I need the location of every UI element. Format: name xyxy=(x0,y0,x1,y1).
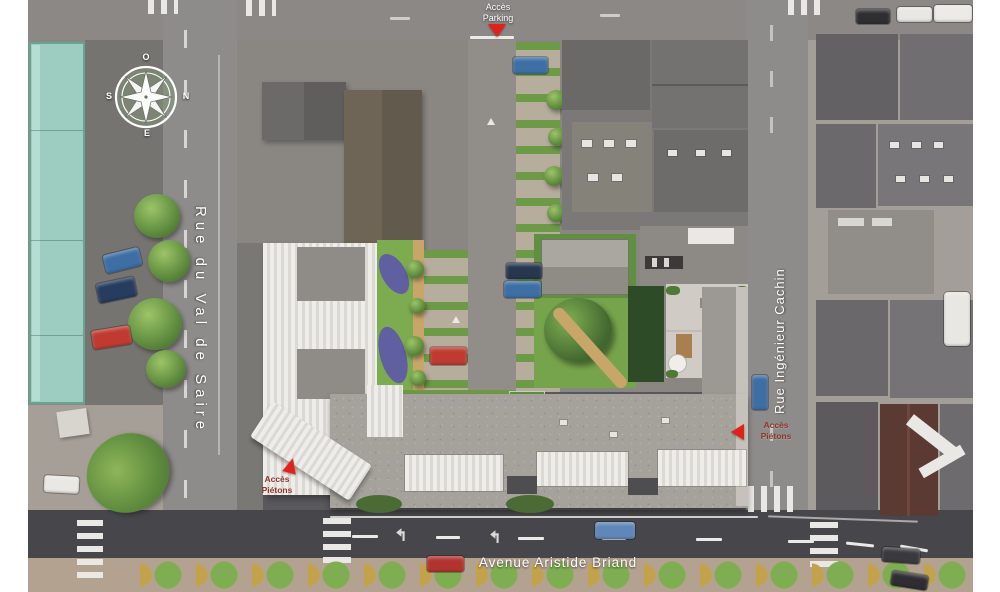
garden-tree xyxy=(404,336,424,356)
skylight xyxy=(934,142,943,148)
gable-roof-building xyxy=(542,240,628,294)
white-roof-mark xyxy=(872,218,892,226)
car xyxy=(897,7,932,22)
white-roof-strip-vertical xyxy=(367,385,403,437)
skylight xyxy=(588,174,598,181)
car-blue xyxy=(504,281,541,298)
skylight xyxy=(612,174,622,181)
east-block-roof xyxy=(816,34,898,120)
roof-ridge-line xyxy=(652,84,748,86)
acces-parking-label: Accès Parking xyxy=(470,2,526,24)
avenue-lane-dash xyxy=(696,538,722,541)
acces-pietons-right-line2: Piétons xyxy=(750,431,802,442)
car-lightblue xyxy=(595,522,635,539)
roof-gap xyxy=(628,478,658,495)
van xyxy=(934,5,972,22)
acces-parking-line2: Parking xyxy=(470,13,526,24)
teal-roof-seam xyxy=(31,335,83,336)
street-tree xyxy=(146,350,186,388)
parking-bays-west xyxy=(424,250,468,392)
skylight xyxy=(912,142,921,148)
dark-roof-detail-slit xyxy=(652,258,657,267)
car-white xyxy=(44,475,80,494)
parking-access-arrow-icon xyxy=(488,24,506,37)
skylight xyxy=(604,140,614,147)
frontage-tree xyxy=(506,495,554,513)
existing-roof xyxy=(562,40,650,110)
east-block-roof xyxy=(816,300,888,396)
compass-north-label: N xyxy=(180,91,192,101)
street-label-rue-ingenieur-cachin: Rue Ingénieur Cachin xyxy=(772,244,787,414)
compass-east-label: E xyxy=(141,128,153,138)
crosswalk xyxy=(77,520,103,578)
terrace-plant xyxy=(666,370,678,378)
west-wing-courtyard xyxy=(297,349,365,399)
skylight xyxy=(668,150,677,156)
roof-vent xyxy=(560,420,567,425)
acces-parking-line1: Accès xyxy=(470,2,526,13)
crosswalk xyxy=(148,0,178,14)
top-road-dash xyxy=(390,17,410,20)
avenue-edge-line xyxy=(330,516,758,518)
white-roof-strip-south xyxy=(405,455,503,491)
roof-gap xyxy=(507,476,537,494)
street-tree xyxy=(134,194,180,238)
terrace-plant xyxy=(666,286,680,295)
car-red-rooftop xyxy=(430,347,467,365)
pedestrian-access-right-arrow-icon xyxy=(731,424,744,440)
existing-building-gray-gable xyxy=(262,82,304,140)
skylight xyxy=(582,140,592,147)
skylight xyxy=(944,176,953,182)
left-margin xyxy=(0,0,28,592)
aerial-site-plan: N S O E Accès Parking Accès Piétons Accè… xyxy=(0,0,1000,592)
avenue-lane-dash xyxy=(518,537,544,540)
street-tree xyxy=(128,298,182,350)
dark-hedge-block xyxy=(628,286,664,382)
aisle-arrow-marking xyxy=(452,316,460,323)
skylight xyxy=(696,150,705,156)
existing-roof xyxy=(654,130,748,212)
skylight xyxy=(896,176,905,182)
white-roof-strip-south xyxy=(658,450,746,486)
acces-pietons-right-line1: Accès xyxy=(750,420,802,431)
white-roof-strip-south xyxy=(537,452,628,486)
frontage-tree xyxy=(356,495,402,513)
compass-south-label: S xyxy=(103,91,115,101)
roof-vent xyxy=(610,432,617,437)
east-block-roof xyxy=(816,402,878,510)
roof-vent xyxy=(662,418,669,423)
skylight xyxy=(626,140,636,147)
garden-tree xyxy=(409,298,425,314)
avenue-lane-dash xyxy=(352,535,378,538)
crosswalk xyxy=(246,0,276,16)
avenue-lane-dash xyxy=(436,536,460,539)
skylight xyxy=(722,150,731,156)
acces-pietons-right-label: Accès Piétons xyxy=(750,420,802,441)
car-red xyxy=(427,556,464,572)
existing-roof-light xyxy=(572,122,652,212)
garden-tree xyxy=(406,260,424,278)
car-dark xyxy=(882,547,921,565)
east-block-roof xyxy=(878,124,973,206)
right-margin xyxy=(973,0,1000,592)
teal-roof-seam xyxy=(31,130,83,131)
crosswalk xyxy=(788,0,824,15)
street-label-rue-du-val-de-saire: Rue du Val de Saire xyxy=(192,206,209,478)
acces-pietons-left-line2: Piétons xyxy=(248,485,306,496)
car-blue xyxy=(513,57,548,74)
turn-arrow-marking xyxy=(490,527,503,544)
car xyxy=(856,9,890,24)
teal-roof-seam xyxy=(31,240,83,241)
compass-rose xyxy=(114,65,178,129)
west-frontage-strip xyxy=(237,243,263,513)
car-navy xyxy=(506,263,542,279)
compass-west-label: O xyxy=(140,52,152,62)
parking-driveway xyxy=(468,40,516,392)
acces-pietons-left-line1: Accès xyxy=(248,474,306,485)
existing-building-brown-slope xyxy=(382,90,422,254)
skylight xyxy=(920,176,929,182)
white-roof-mark xyxy=(838,218,864,226)
white-bus xyxy=(944,292,970,346)
hedge-tree xyxy=(544,166,564,186)
east-block-roof xyxy=(816,124,876,208)
west-wing-courtyard xyxy=(297,247,365,301)
dark-roof-detail-slit xyxy=(664,258,669,267)
teal-building-edge xyxy=(32,45,40,401)
street-label-avenue-aristide-briand: Avenue Aristide Briand xyxy=(472,555,644,570)
street-tree xyxy=(148,240,190,282)
right-road-dashes xyxy=(770,25,773,135)
left-road-edge-line xyxy=(218,55,220,455)
aisle-arrow-marking xyxy=(487,118,495,125)
skylight xyxy=(890,142,899,148)
garden-tree xyxy=(410,370,426,386)
avenue-lane-dash xyxy=(788,540,814,543)
east-block-roof xyxy=(900,34,973,120)
car-blue-vertical xyxy=(752,375,768,410)
white-roof-patch xyxy=(688,228,734,244)
top-road-dash xyxy=(600,14,620,17)
turn-arrow-marking xyxy=(396,525,409,542)
acces-pietons-left-label: Accès Piétons xyxy=(248,474,306,495)
white-shed xyxy=(56,408,89,438)
